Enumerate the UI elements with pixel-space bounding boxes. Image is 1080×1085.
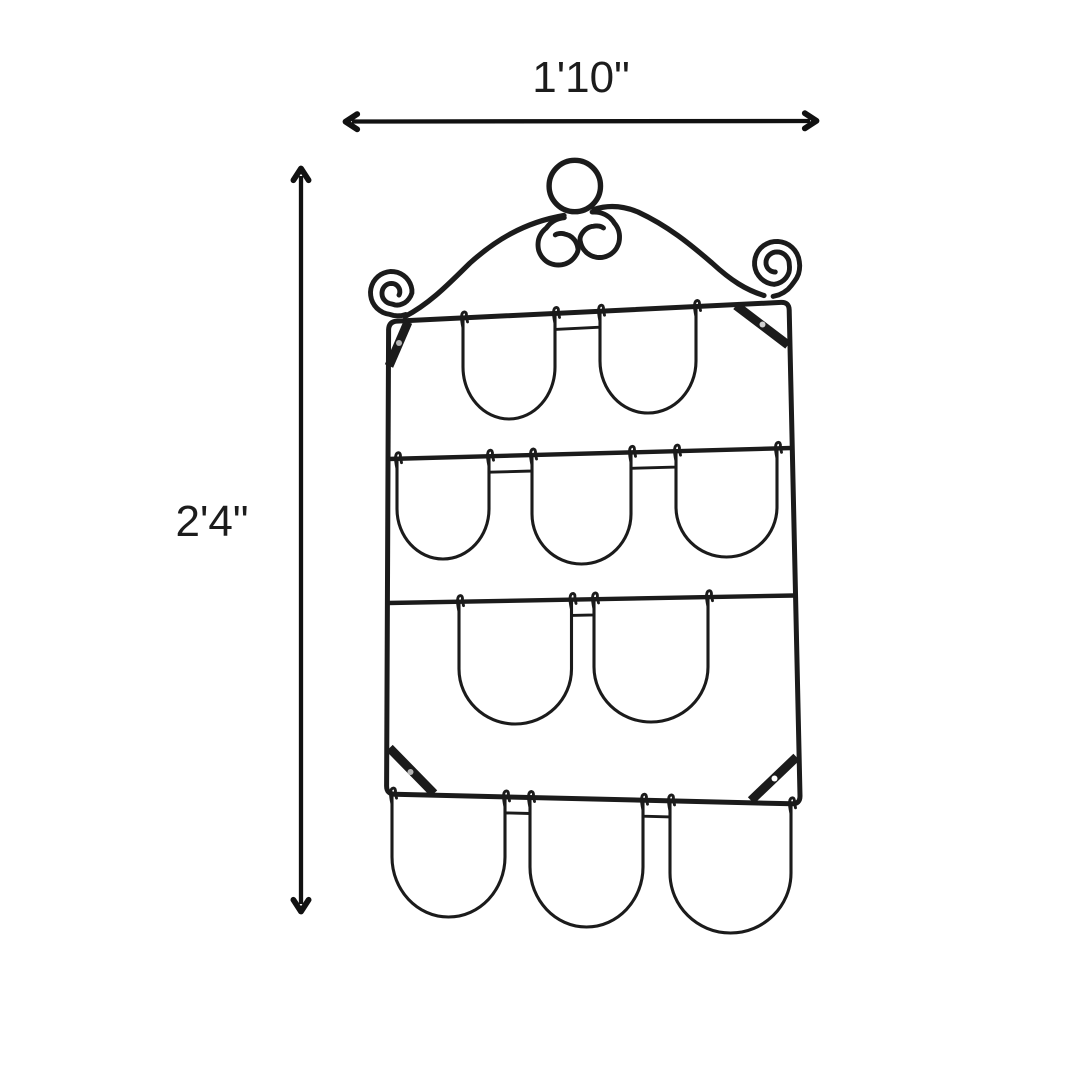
svg-text:2'4": 2'4" — [176, 497, 249, 546]
svg-text:1'10": 1'10" — [532, 53, 629, 102]
